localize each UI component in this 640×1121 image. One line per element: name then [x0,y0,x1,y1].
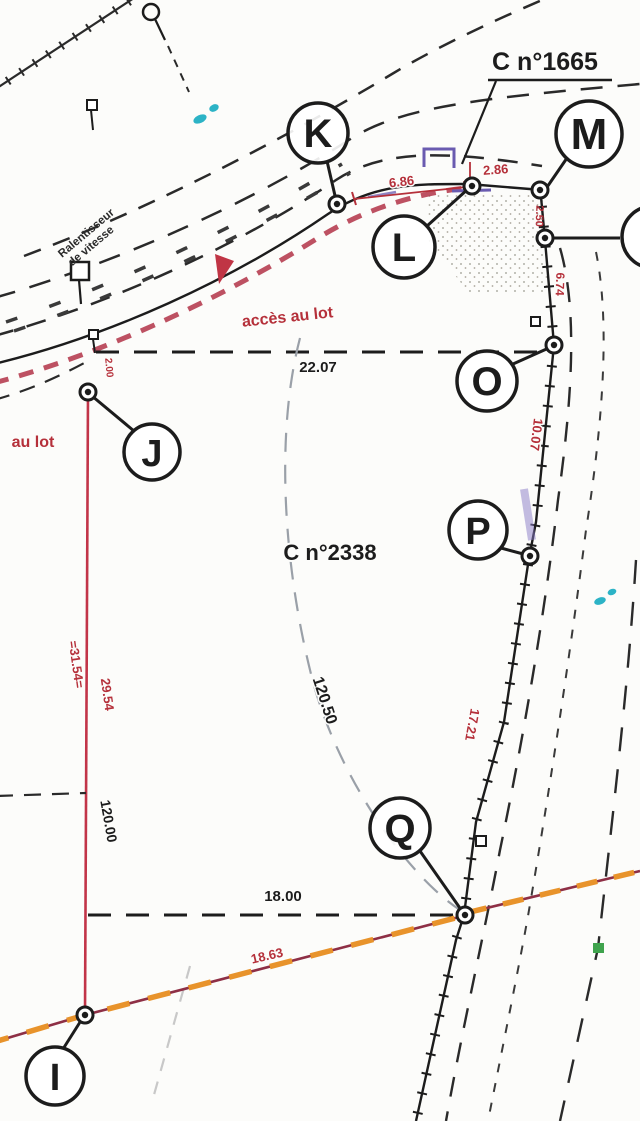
point-label-p: P [465,511,490,553]
survey-marker-j [80,384,96,400]
open-square-symbol-lower [476,836,486,846]
orange-dashes-left [0,916,463,1042]
survey-marker-i [77,1007,93,1023]
fence-line-topleft [0,0,134,90]
dim-right-a: 10.07 [527,417,546,451]
fence-ticks-topleft [0,0,134,90]
dim-right-b: 17.21 [462,707,482,742]
cyan-mark-top-1 [192,112,208,125]
cadastral-plan: K L M O P Q J I C n°1665 C n°2338 accès … [0,0,640,1121]
leader-i [63,1019,82,1049]
c1665-leader-line [462,81,496,164]
parcel-left-red-line [85,394,88,1013]
au-lot-label: au lot [12,434,55,451]
dim-diagonal: 120.50 [309,675,340,727]
dim-m-n: 2.50 [533,205,546,227]
open-square-symbol-upper [531,317,540,326]
survey-marker-k [329,196,345,212]
purple-bracket-mark [424,149,454,168]
point-label-k: K [304,112,333,156]
cyan-mark-right-1 [593,596,607,607]
dim-top-side: 22.07 [299,359,337,376]
point-label-j: J [141,433,162,475]
parcel-label-c1665: C n°1665 [492,48,598,76]
dim-j-offset: 2.00 [102,358,115,379]
point-label-o: O [471,360,502,404]
point-circle-n-partial [622,206,640,268]
lamp-post-dashes [168,46,189,92]
acces-au-lot-label: accès au lot [241,304,335,331]
purple-smudge-mark [524,489,532,540]
leader-j [92,396,134,431]
dim-left-total: 120.00 [97,799,120,844]
left-edge-dashed-line [0,793,86,796]
dim-road-k-l: 6.86 [388,173,415,191]
cyan-mark-right-2 [607,588,618,597]
survey-marker-p [522,548,538,564]
boundary-post-icon-j [89,330,98,339]
dim-left-red-b: 29.54 [98,677,117,712]
lamp-post-stem [155,19,165,40]
dim-left-red-a: =31.54= [66,640,88,690]
dim-n-o: 6.74 [553,272,568,296]
marker-flag-stem [91,110,93,130]
survey-marker-o [546,337,562,353]
survey-marker-l [464,178,480,194]
point-label-l: L [392,226,416,270]
lamp-post-icon [143,4,159,20]
survey-marker-q [457,907,473,923]
point-label-i: I [50,1057,61,1099]
point-label-m: M [571,110,608,159]
leader-o [513,347,551,364]
survey-marker-n [537,230,553,246]
dim-bottom-side: 18.00 [264,888,302,905]
survey-marker-m [532,182,548,198]
dim-road-l: 2.86 [483,161,509,178]
right-road-dashed-3 [560,560,636,1121]
cyan-mark-top-2 [208,103,220,114]
parcel-label-c2338: C n°2338 [283,540,376,565]
road-lower-left-dashes [0,362,86,400]
marker-flag-icon [87,100,97,110]
plan-drawing: K L M O P Q J I C n°1665 C n°2338 accès … [0,0,640,1121]
point-label-q: Q [384,807,415,851]
speed-bump-sign-stem [79,280,81,304]
faint-dashed-line-bottom [152,966,190,1102]
green-square-mark [593,943,604,953]
